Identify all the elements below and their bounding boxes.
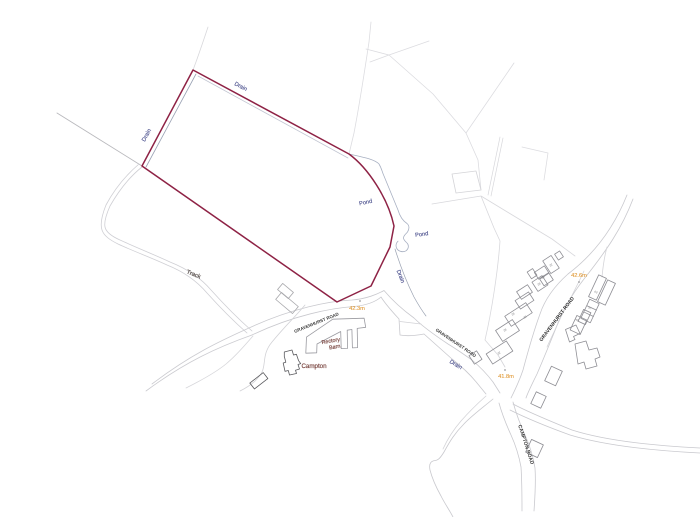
svg-text:42.6m: 42.6m [571,273,587,279]
svg-text:42.3m: 42.3m [349,306,365,312]
svg-text:Campton: Campton [301,363,327,370]
svg-text:41.8m: 41.8m [498,374,514,380]
